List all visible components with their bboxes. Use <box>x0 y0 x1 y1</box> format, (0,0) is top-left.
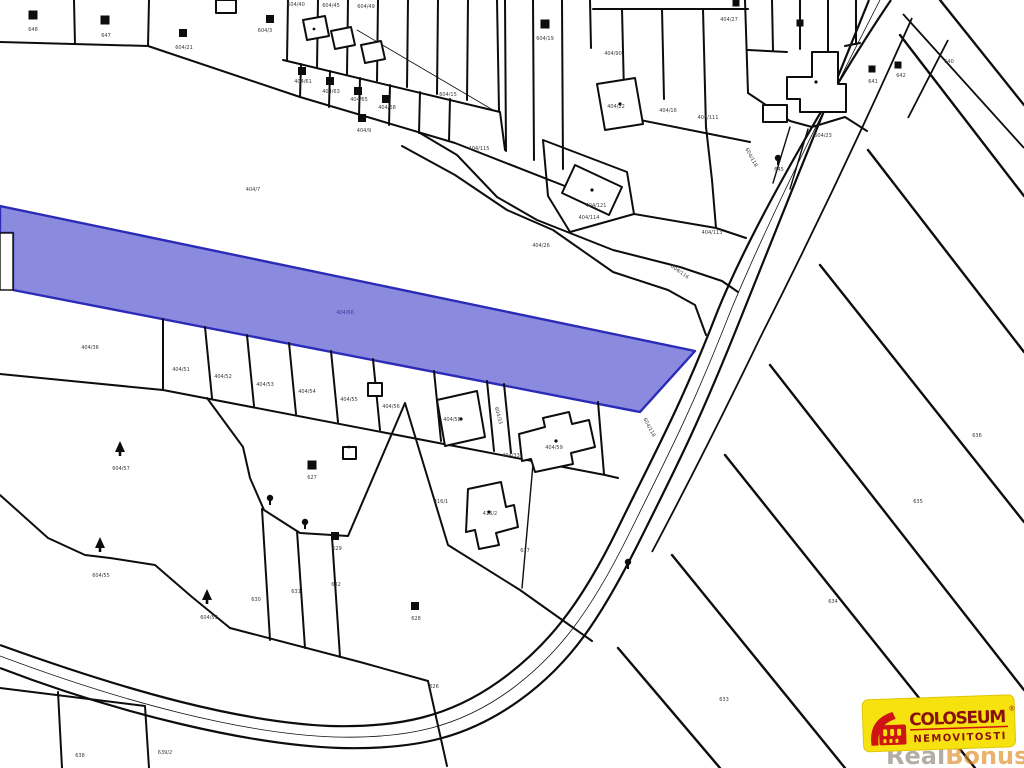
parcel-label: 637 <box>520 548 530 554</box>
parcel-label: 640 <box>944 59 954 65</box>
building-footprint <box>541 20 550 29</box>
parcel-label: 628 <box>411 616 421 622</box>
parcel-label: 604/57 <box>112 466 130 472</box>
parcel-label: 648 <box>28 27 38 33</box>
building-footprint <box>382 95 390 103</box>
parcel-label: 404/90 <box>604 51 622 57</box>
parcel-label: 404/56 <box>382 404 400 410</box>
building-footprint <box>266 15 274 23</box>
highlighted-parcel-label: 404/66 <box>336 310 354 316</box>
parcel-label: 416/1 <box>434 499 448 505</box>
parcel-label: 404/54 <box>298 389 316 395</box>
parcel-label: 631 <box>291 589 301 595</box>
parcel-label: 647 <box>101 33 111 39</box>
building-footprint <box>29 11 38 20</box>
parcel-label: 404/59 <box>545 445 563 451</box>
building-footprint <box>733 0 740 7</box>
parcel-label: 634 <box>828 599 838 605</box>
round-tree-icon <box>267 495 273 505</box>
building-footprint <box>308 461 317 470</box>
parcel-label: 604/118 <box>743 147 758 168</box>
parcel-label: 404/27 <box>720 17 738 23</box>
building-footprint <box>326 77 334 85</box>
parcel-label: 404/111 <box>698 115 719 121</box>
coloseum-logo[interactable]: COLOSEUM ® NEMOVITOSTI <box>862 695 1017 752</box>
parcel-label: 604/118 <box>641 417 656 438</box>
parcel-label: 404/51 <box>172 367 190 373</box>
building-footprint <box>797 20 804 27</box>
conifer-tree-icon <box>95 537 105 552</box>
parcel-label: 404/16 <box>659 108 677 114</box>
parcel-label: 404/58 <box>443 417 461 423</box>
parcel-label: 604/19 <box>536 36 554 42</box>
parcel-label: 404/22 <box>607 104 625 110</box>
logo-registered-mark: ® <box>1008 705 1015 713</box>
parcel-label: 636 <box>972 433 982 439</box>
parcel-label: 645 <box>774 167 784 173</box>
parcel-label: 404/53 <box>256 382 274 388</box>
parcel-label: 604/45 <box>322 3 340 9</box>
parcel-label: 404/121 <box>586 203 607 209</box>
parcel-label: 632 <box>331 582 341 588</box>
parcel-label: 404/26 <box>532 243 550 249</box>
hatched-field-strips <box>618 0 1024 768</box>
parcel-label: 404/115 <box>469 146 490 152</box>
parcel-label: 635 <box>913 499 923 505</box>
parcel-label: 639/2 <box>158 750 172 756</box>
parcel-label: 604/49 <box>357 4 375 10</box>
parcel-label: 404/52 <box>214 374 232 380</box>
parcel-label: 604/40 <box>287 2 305 8</box>
parcel-label: 404/33 <box>502 453 520 459</box>
conifer-tree-icon <box>115 441 125 456</box>
parcel-label: 404/61 <box>294 79 312 85</box>
round-tree-icon <box>775 155 781 165</box>
parcel-label: 404/63 <box>322 89 340 95</box>
cadastral-map-viewport: 604/40604/45604/49648647604/21604/3404/6… <box>0 0 1024 768</box>
building-footprint <box>354 87 362 95</box>
parcel-label: 629 <box>332 546 342 552</box>
round-tree-icon <box>302 519 308 529</box>
parcel-label: 627 <box>307 475 317 481</box>
building-footprint <box>895 62 902 69</box>
parcel-label: 404/113 <box>702 230 723 236</box>
parcel-label: 404/68 <box>378 105 396 111</box>
parcel-label: 404/36 <box>81 345 99 351</box>
building-footprint <box>411 602 419 610</box>
parcel-label: 641 <box>868 79 878 85</box>
parcel-label: 404/114 <box>579 215 600 221</box>
parcel-label: 404/9 <box>357 128 371 134</box>
building-footprint <box>869 66 876 73</box>
parcel-label: 633 <box>719 697 729 703</box>
conifer-tree-icon <box>202 589 212 604</box>
parcel-label: 626 <box>429 684 439 690</box>
parcel-notch <box>0 233 13 290</box>
building-footprint <box>179 29 187 37</box>
parcel-label: 604/3 <box>258 28 272 34</box>
parcel-label: 404/65 <box>350 97 368 103</box>
parcel-label: 404/55 <box>340 397 358 403</box>
building-footprint <box>101 16 110 25</box>
building-footprint <box>331 532 339 540</box>
cadastral-map: 604/40604/45604/49648647604/21604/3404/6… <box>0 0 1024 768</box>
parcel-label: 604/21 <box>175 45 193 51</box>
parcel-label: 604/55 <box>92 573 110 579</box>
parcel-label: 630 <box>251 597 261 603</box>
parcel-label: 416/2 <box>483 511 497 517</box>
parcel-label: 604/33 <box>493 406 503 425</box>
building-footprint <box>358 114 366 122</box>
highlighted-parcel[interactable] <box>0 206 695 412</box>
building-footprint <box>298 67 306 75</box>
parcel-label: 642 <box>896 73 906 79</box>
parcel-label: 604/23 <box>814 133 832 139</box>
parcel-label: 638 <box>75 753 85 759</box>
parcel-label: 604/53 <box>200 615 218 621</box>
parcel-label: 404/7 <box>246 187 260 193</box>
parcel-label: 604/15 <box>439 92 457 98</box>
